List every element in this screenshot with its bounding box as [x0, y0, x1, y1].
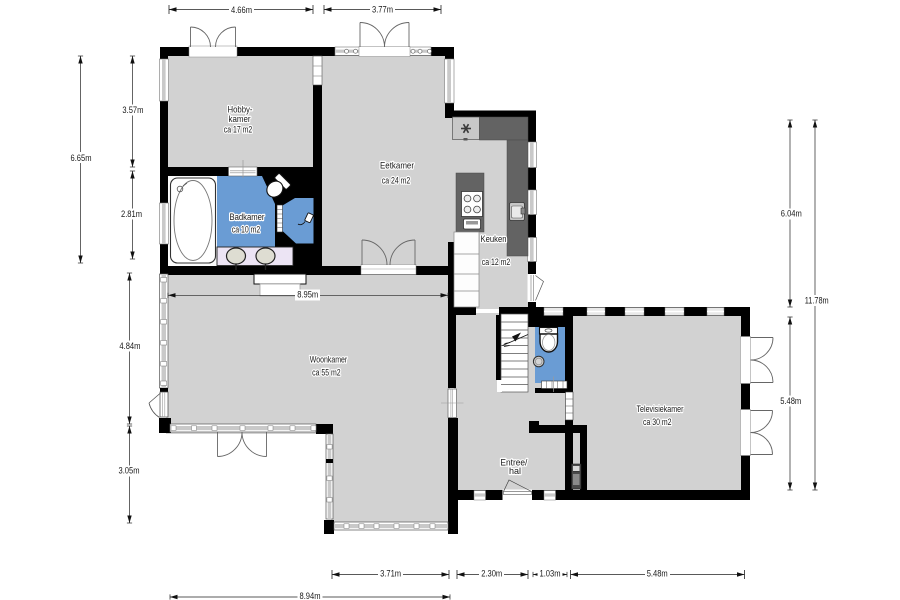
svg-text:5.48m: 5.48m: [780, 396, 801, 406]
svg-text:Eetkamer: Eetkamer: [380, 160, 414, 170]
svg-text:hal: hal: [509, 466, 521, 476]
svg-text:1.03m: 1.03m: [540, 569, 561, 579]
svg-text:6.65m: 6.65m: [71, 153, 92, 163]
svg-text:2.30m: 2.30m: [481, 569, 502, 579]
svg-text:11.78m: 11.78m: [805, 295, 829, 305]
svg-text:ca 10 m2: ca 10 m2: [232, 225, 261, 235]
svg-text:2.81m: 2.81m: [121, 209, 142, 219]
svg-text:3.71m: 3.71m: [380, 569, 401, 579]
svg-text:4.84m: 4.84m: [119, 341, 140, 351]
svg-text:3.05m: 3.05m: [119, 466, 140, 476]
svg-text:Keuken: Keuken: [481, 234, 507, 244]
svg-text:Hobby-: Hobby-: [228, 104, 253, 114]
svg-text:Televisiekamer: Televisiekamer: [637, 404, 684, 414]
svg-text:5.48m: 5.48m: [647, 569, 668, 579]
svg-text:8.94m: 8.94m: [300, 591, 321, 600]
svg-text:Badkamer: Badkamer: [230, 212, 265, 222]
svg-text:ca 30 m2: ca 30 m2: [643, 417, 672, 427]
svg-text:kamer: kamer: [229, 114, 251, 124]
svg-text:6.04m: 6.04m: [781, 209, 802, 219]
svg-text:ca 24 m2: ca 24 m2: [382, 175, 411, 185]
svg-text:ca 55 m2: ca 55 m2: [312, 368, 341, 378]
svg-text:4.66m: 4.66m: [231, 5, 252, 15]
svg-text:ca 12 m2: ca 12 m2: [482, 257, 511, 267]
svg-text:8.95m: 8.95m: [297, 290, 318, 300]
svg-text:3.77m: 3.77m: [372, 5, 393, 15]
svg-text:Woonkamer: Woonkamer: [310, 355, 348, 365]
svg-text:ca 17 m2: ca 17 m2: [224, 125, 253, 135]
svg-text:3.57m: 3.57m: [122, 105, 143, 115]
